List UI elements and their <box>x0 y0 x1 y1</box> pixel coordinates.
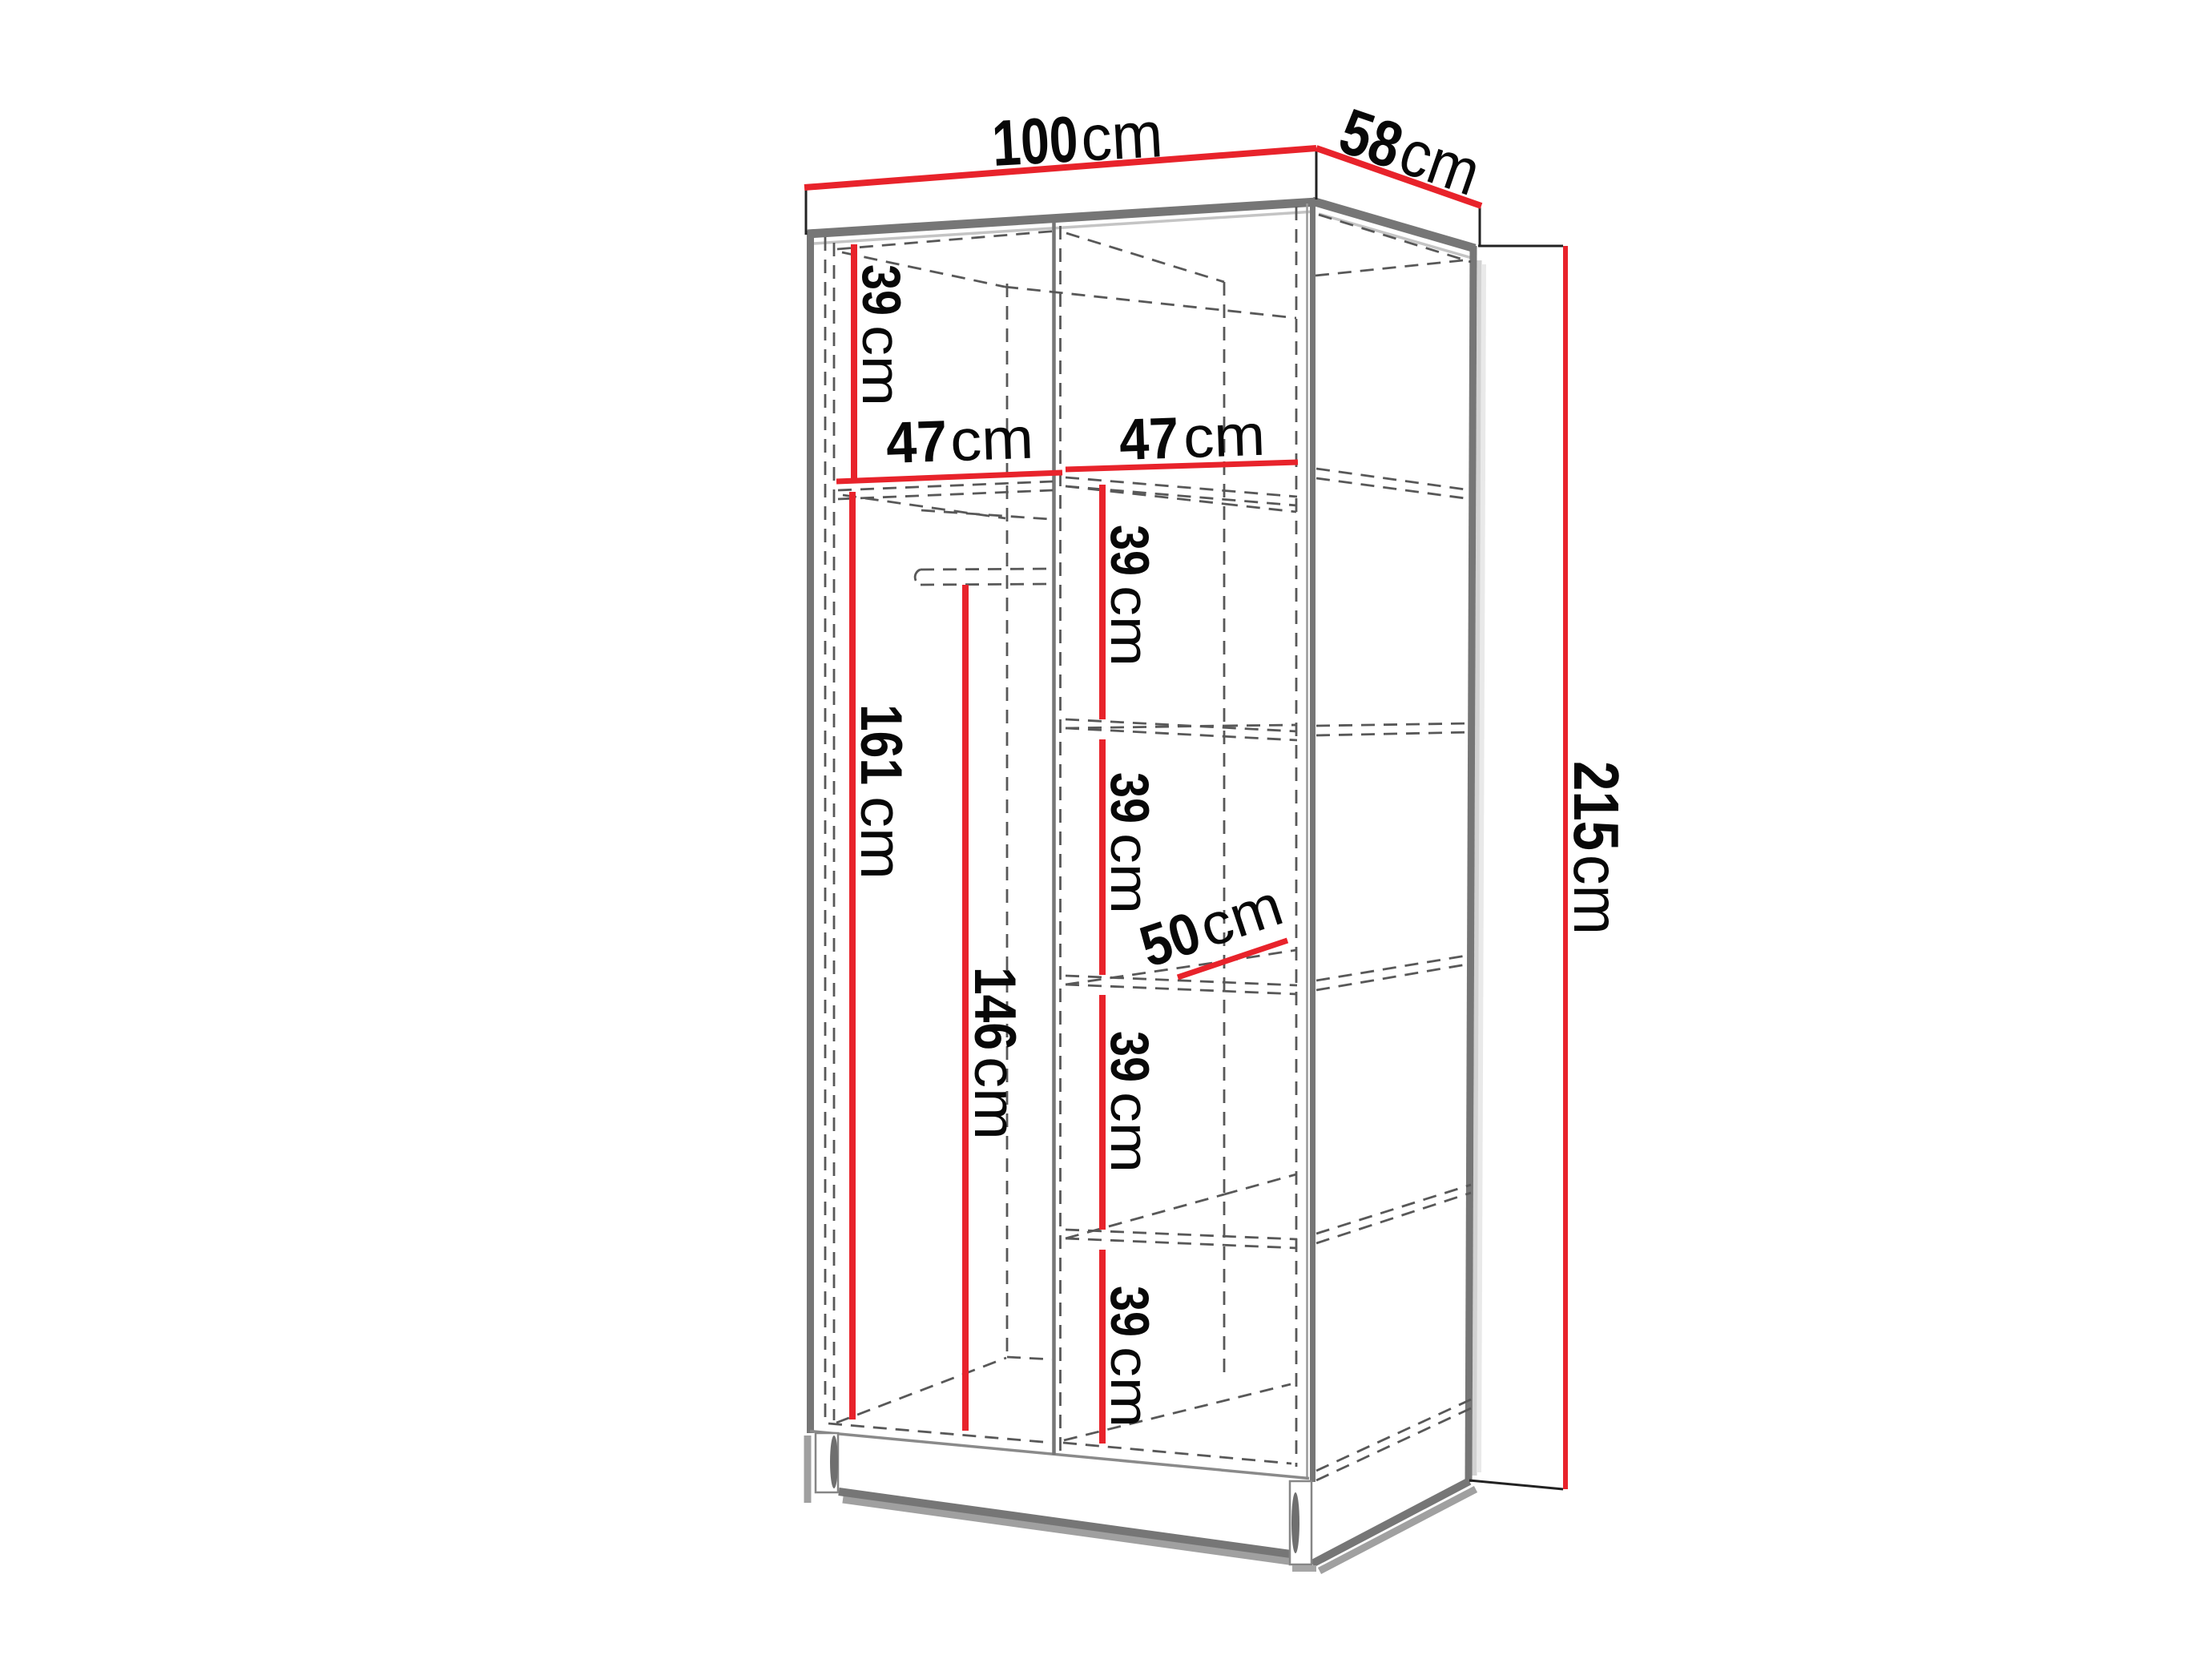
svg-text:100: 100 <box>990 103 1080 180</box>
svg-text:cm: cm <box>949 406 1035 474</box>
svg-text:cm: cm <box>962 1057 1027 1140</box>
svg-text:39: 39 <box>1099 1286 1160 1337</box>
svg-text:215: 215 <box>1561 761 1632 851</box>
svg-text:cm: cm <box>1561 855 1632 935</box>
svg-text:39: 39 <box>851 264 912 316</box>
svg-text:47: 47 <box>885 409 949 476</box>
svg-text:cm: cm <box>1099 1347 1160 1427</box>
svg-text:39: 39 <box>1099 1031 1160 1082</box>
svg-text:cm: cm <box>1099 586 1160 666</box>
svg-text:cm: cm <box>1099 1092 1160 1173</box>
svg-text:cm: cm <box>848 796 913 880</box>
svg-text:cm: cm <box>1183 403 1267 471</box>
svg-text:47: 47 <box>1118 405 1180 473</box>
svg-text:39: 39 <box>1099 772 1160 823</box>
svg-text:161: 161 <box>848 704 913 785</box>
svg-text:cm: cm <box>1099 833 1160 914</box>
svg-text:cm: cm <box>851 325 912 406</box>
svg-text:146: 146 <box>962 967 1027 1050</box>
svg-text:cm: cm <box>1079 99 1165 175</box>
svg-text:39: 39 <box>1099 525 1160 576</box>
